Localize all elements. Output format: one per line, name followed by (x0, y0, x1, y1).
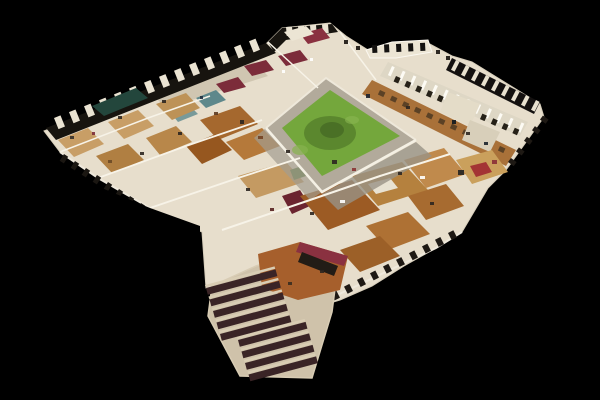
dollhouse-viewer (0, 0, 600, 400)
model-canvas[interactable] (0, 0, 600, 400)
dollhouse-model-render (0, 0, 600, 400)
